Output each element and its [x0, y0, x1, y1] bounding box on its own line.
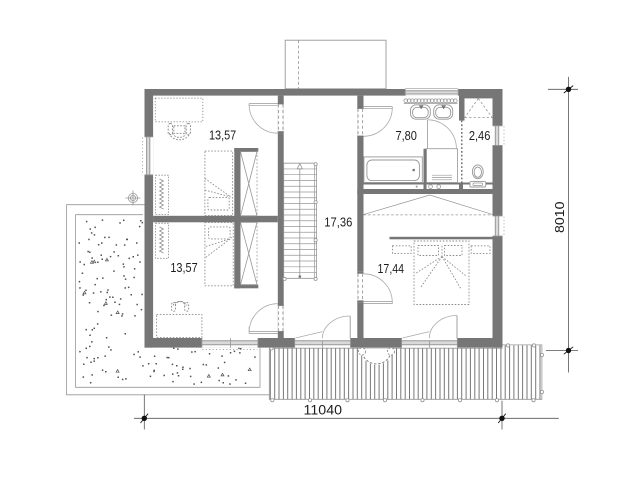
svg-text:17,36: 17,36 — [324, 214, 352, 229]
svg-text:13,57: 13,57 — [170, 260, 197, 275]
svg-text:7,80: 7,80 — [395, 128, 417, 143]
svg-text:13,57: 13,57 — [209, 128, 236, 143]
svg-text:2,46: 2,46 — [469, 128, 491, 143]
svg-text:17,44: 17,44 — [378, 261, 405, 276]
svg-text:8010: 8010 — [552, 201, 567, 233]
svg-text:11040: 11040 — [304, 402, 343, 418]
